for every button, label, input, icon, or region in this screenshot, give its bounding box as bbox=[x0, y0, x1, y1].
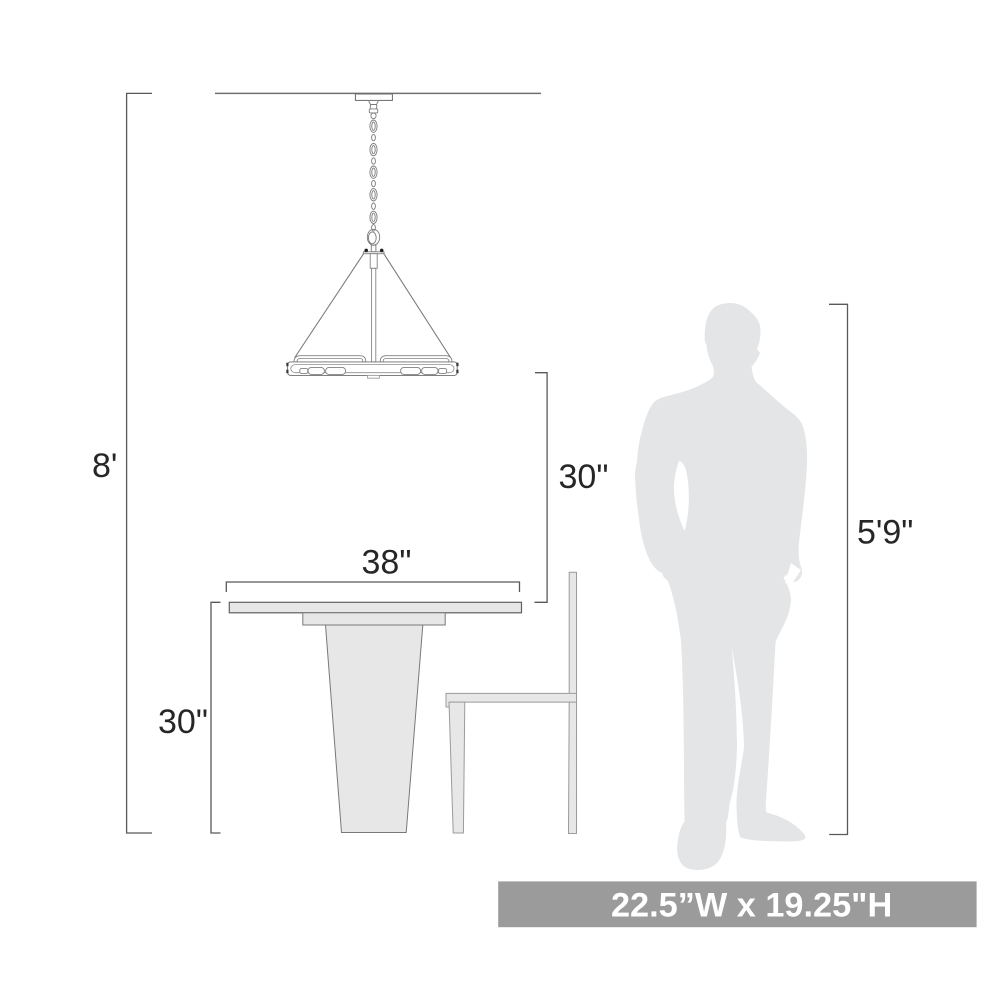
svg-text:30": 30" bbox=[559, 458, 609, 496]
svg-text:22.5”W x 19.25"H: 22.5”W x 19.25"H bbox=[611, 887, 892, 925]
svg-text:8': 8' bbox=[92, 447, 117, 485]
svg-text:30": 30" bbox=[158, 703, 208, 741]
svg-text:38": 38" bbox=[362, 544, 412, 582]
svg-text:5'9": 5'9" bbox=[857, 513, 913, 551]
